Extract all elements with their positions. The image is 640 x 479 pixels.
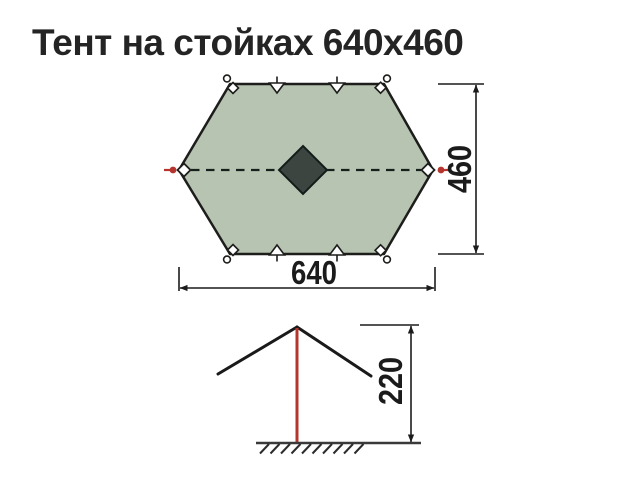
dimension-height: 220: [360, 325, 419, 442]
tent-spec-diagram: Тент на стойках 640x460: [0, 0, 640, 479]
hatch-mark: [302, 444, 311, 454]
dimension-depth: 460: [438, 84, 484, 254]
hatch-mark: [260, 444, 269, 454]
hatch-mark: [355, 444, 364, 454]
roof-line-right: [297, 327, 371, 376]
corner-loop-icon: [224, 75, 231, 82]
dimension-depth-label: 460: [441, 145, 478, 193]
ground-hatching: [260, 444, 364, 454]
tent-diagram-canvas: 460 640: [0, 0, 640, 479]
dimension-height-label: 220: [372, 357, 409, 405]
top-view: 460 640: [164, 75, 484, 291]
guy-point-left: [164, 167, 176, 174]
dimension-width: 640: [179, 254, 435, 291]
hatch-mark: [334, 444, 343, 454]
hatch-mark: [344, 444, 353, 454]
side-view: 220: [218, 325, 421, 454]
hatch-mark: [281, 444, 290, 454]
roof-line-left: [218, 327, 297, 374]
hatch-mark: [323, 444, 332, 454]
hatch-mark: [271, 444, 280, 454]
guy-point-dot: [170, 167, 177, 174]
hatch-mark: [313, 444, 322, 454]
corner-loop-icon: [384, 256, 391, 263]
dimension-width-label: 640: [291, 254, 337, 291]
corner-loop-icon: [384, 75, 391, 82]
hatch-mark: [292, 444, 301, 454]
corner-loop-icon: [224, 256, 231, 263]
